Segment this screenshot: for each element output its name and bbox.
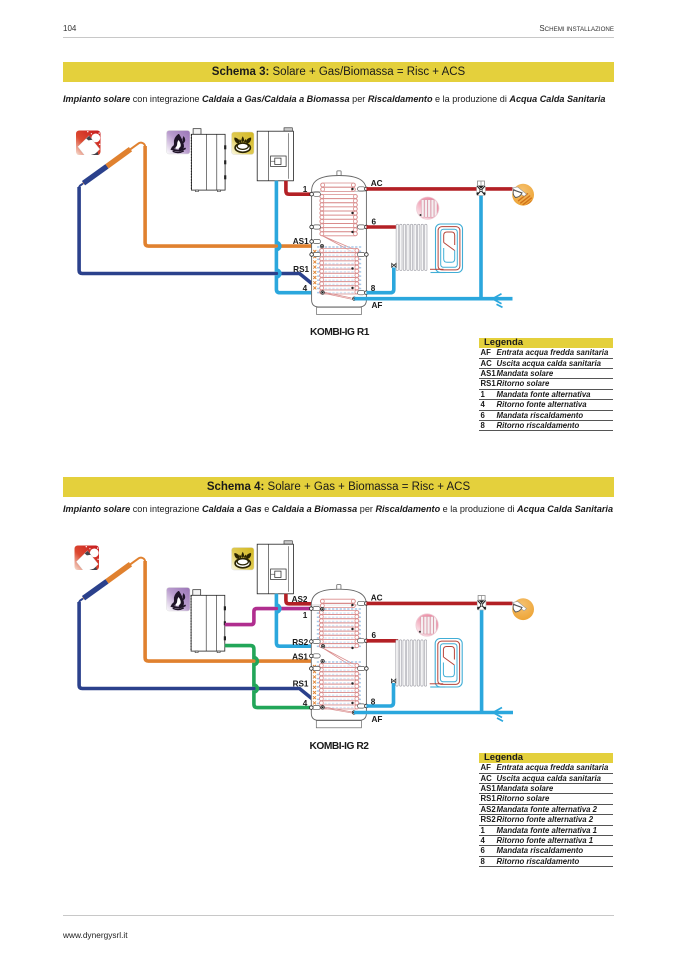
svg-text:AC: AC	[371, 179, 383, 188]
svg-text:6: 6	[372, 217, 377, 226]
svg-text:AC: AC	[371, 594, 383, 603]
svg-text:AF: AF	[372, 301, 383, 310]
svg-text:AS2: AS2	[292, 595, 308, 604]
svg-text:8: 8	[371, 697, 376, 706]
svg-text:4: 4	[303, 284, 308, 293]
svg-text:1: 1	[303, 185, 308, 194]
svg-text:RS1: RS1	[293, 265, 309, 274]
svg-text:AS1: AS1	[292, 653, 308, 662]
svg-text:RS2: RS2	[292, 638, 308, 647]
svg-text:1: 1	[303, 611, 308, 620]
svg-text:4: 4	[303, 699, 308, 708]
svg-text:6: 6	[372, 631, 377, 640]
svg-text:AF: AF	[372, 715, 383, 724]
svg-text:8: 8	[371, 284, 376, 293]
svg-text:AS1: AS1	[293, 237, 309, 246]
svg-text:RS1: RS1	[293, 680, 309, 689]
svg-text:KOMBI-IG R2: KOMBI-IG R2	[309, 741, 369, 752]
svg-text:KOMBI-IG R1: KOMBI-IG R1	[310, 327, 370, 338]
